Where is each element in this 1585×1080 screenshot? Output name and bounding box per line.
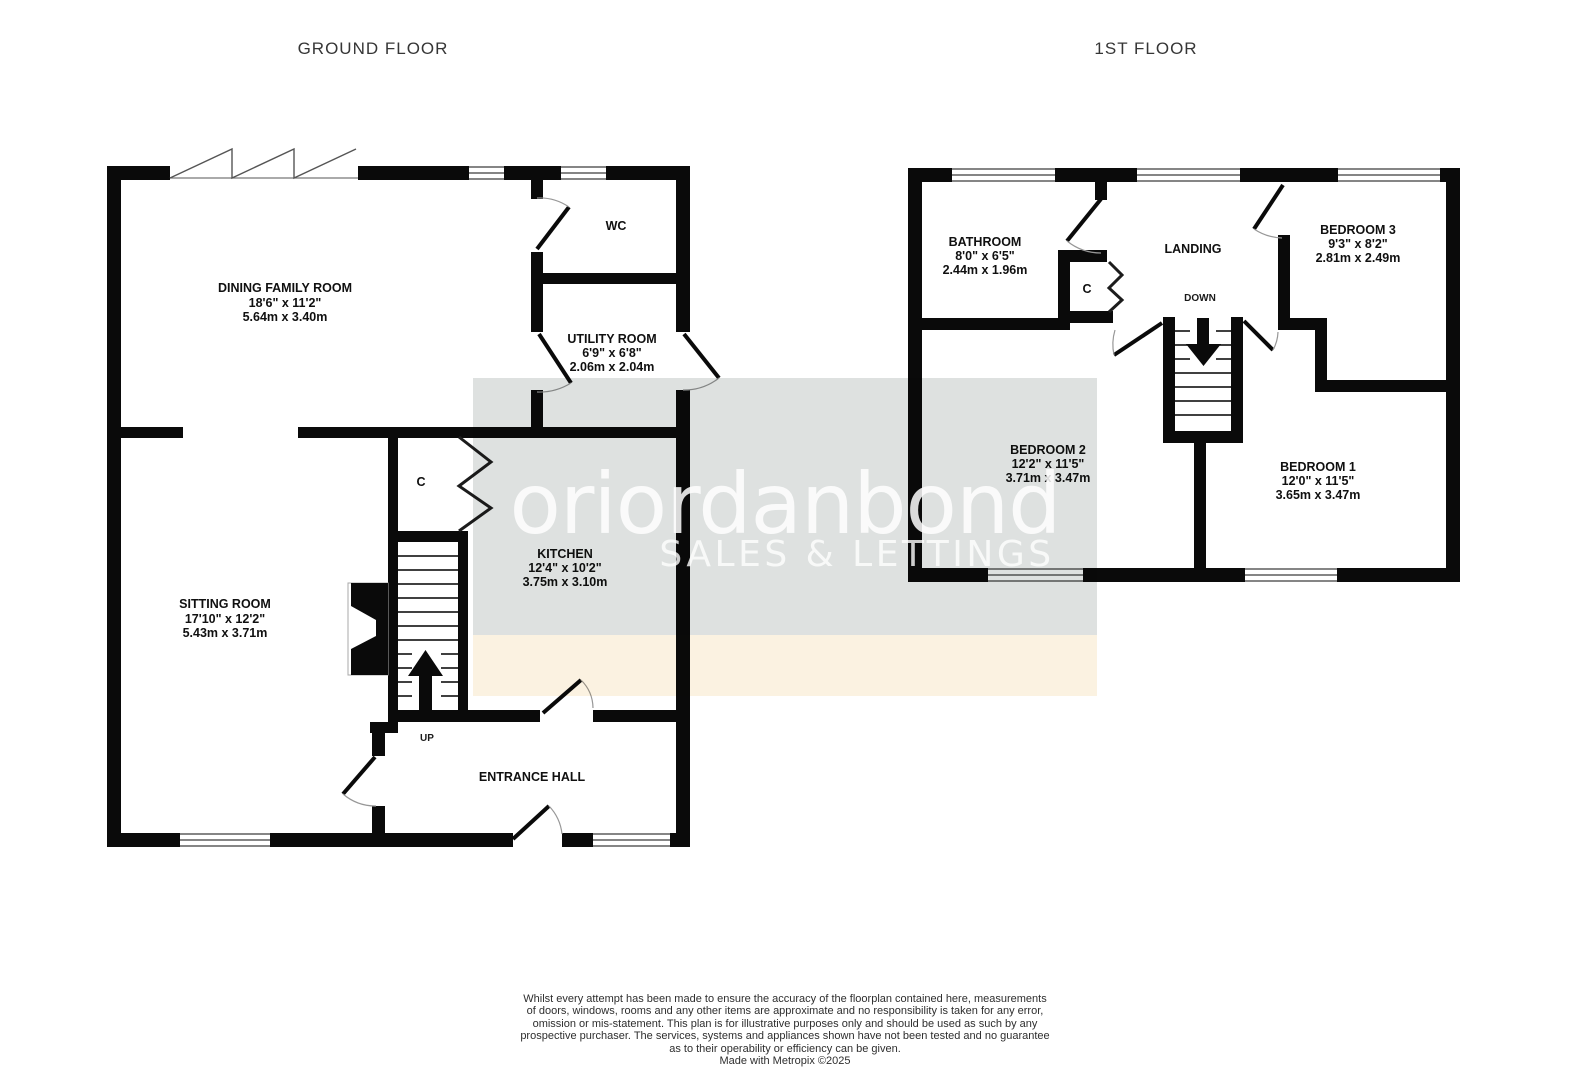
bedroom1-label: BEDROOM 1 bbox=[1280, 460, 1356, 474]
metropix-credit: Made with Metropix ©2025 bbox=[435, 1055, 1135, 1067]
window-icon bbox=[593, 833, 670, 847]
window-icon bbox=[1245, 568, 1337, 582]
door-icon bbox=[1067, 199, 1101, 253]
watermark-tagline-text: SALES & LETTINGS bbox=[659, 534, 1054, 575]
sitting-room-metric: 5.43m x 3.71m bbox=[183, 626, 268, 640]
ground-floor-title: GROUND FLOOR bbox=[298, 39, 449, 58]
stairs-down-arrow-icon bbox=[1186, 318, 1221, 368]
sitting-room-label: SITTING ROOM bbox=[179, 597, 271, 611]
watermark-cream-band bbox=[473, 635, 1097, 696]
door-icon bbox=[537, 198, 569, 249]
disclaimer-line: Whilst every attempt has been made to en… bbox=[435, 993, 1135, 1005]
bedroom3-metric: 2.81m x 2.49m bbox=[1316, 251, 1401, 265]
dining-room-imperial: 18'6" x 11'2" bbox=[249, 296, 322, 310]
watermark: oriordanbond SALES & LETTINGS bbox=[473, 378, 1097, 696]
door-icon bbox=[1113, 323, 1162, 355]
disclaimer-line: omission or mis-statement. This plan is … bbox=[435, 1018, 1135, 1030]
window-icon bbox=[180, 833, 270, 847]
window-icon bbox=[1137, 168, 1240, 182]
bathroom-metric: 2.44m x 1.96m bbox=[943, 263, 1028, 277]
bathroom-label: BATHROOM bbox=[949, 235, 1022, 249]
bedroom3-label: BEDROOM 3 bbox=[1320, 223, 1396, 237]
sitting-room-imperial: 17'10" x 12'2" bbox=[185, 612, 265, 626]
disclaimer-line: as to their operability or efficiency ca… bbox=[435, 1043, 1135, 1055]
fireplace-icon bbox=[348, 583, 388, 675]
wc-label: WC bbox=[606, 219, 627, 233]
bedroom1-imperial: 12'0" x 11'5" bbox=[1282, 474, 1355, 488]
disclaimer: Whilst every attempt has been made to en… bbox=[435, 993, 1135, 1067]
floorplan-page: DINING FAMILY ROOM 18'6" x 11'2" 5.64m x… bbox=[0, 0, 1585, 1080]
stairs-up-label: UP bbox=[420, 733, 434, 744]
window-icon bbox=[1338, 168, 1440, 182]
first-floor-title: 1ST FLOOR bbox=[1094, 39, 1197, 58]
front-door-icon bbox=[513, 806, 562, 839]
dining-room-label: DINING FAMILY ROOM bbox=[218, 281, 352, 295]
disclaimer-line: prospective purchaser. The services, sys… bbox=[435, 1030, 1135, 1042]
disclaimer-line: of doors, windows, rooms and any other i… bbox=[435, 1005, 1135, 1017]
window-icon bbox=[561, 166, 606, 180]
door-icon bbox=[1244, 321, 1278, 350]
bedroom1-metric: 3.65m x 3.47m bbox=[1276, 488, 1361, 502]
utility-room-imperial: 6'9" x 6'8" bbox=[582, 346, 642, 360]
landing-label: LANDING bbox=[1165, 242, 1222, 256]
entrance-hall-label: ENTRANCE HALL bbox=[479, 770, 586, 784]
window-icon bbox=[469, 166, 504, 180]
stairs-up-arrow-icon bbox=[408, 648, 443, 713]
stairs-down-label: DOWN bbox=[1184, 293, 1216, 304]
cupboard-label: C bbox=[1082, 282, 1091, 296]
bathroom-imperial: 8'0" x 6'5" bbox=[955, 249, 1015, 263]
bifold-cupboard-icon bbox=[1109, 262, 1122, 312]
dining-room-metric: 5.64m x 3.40m bbox=[243, 310, 328, 324]
door-icon bbox=[1254, 185, 1283, 238]
window-icon bbox=[952, 168, 1055, 182]
cupboard-label: C bbox=[416, 475, 425, 489]
bifold-doors-icon bbox=[170, 149, 358, 178]
utility-room-label: UTILITY ROOM bbox=[567, 332, 656, 346]
bedroom3-imperial: 9'3" x 8'2" bbox=[1328, 237, 1388, 251]
stairs-down bbox=[1175, 318, 1231, 415]
floorplan-drawing: DINING FAMILY ROOM 18'6" x 11'2" 5.64m x… bbox=[0, 0, 1585, 1080]
door-icon bbox=[343, 757, 376, 806]
stairs-up bbox=[398, 556, 458, 713]
utility-room-metric: 2.06m x 2.04m bbox=[570, 360, 655, 374]
